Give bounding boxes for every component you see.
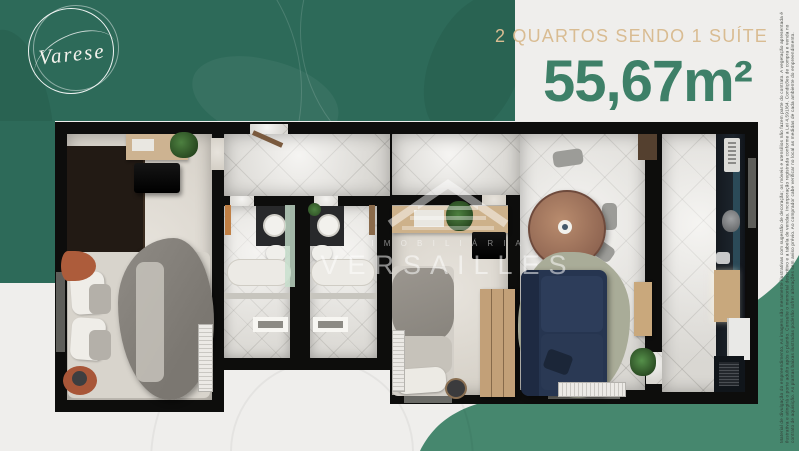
bath2-shower-divider xyxy=(310,293,377,299)
suite-blanket-fold xyxy=(136,262,164,382)
suite-window xyxy=(56,272,65,352)
bath2-towel xyxy=(369,205,375,235)
legal-disclaimer-vertical: Material de divulgação do empreendimento… xyxy=(779,8,795,443)
living-console xyxy=(634,282,652,336)
suite-wardrobe xyxy=(67,146,145,254)
living-shelf xyxy=(638,134,657,160)
varese-logo: Varese xyxy=(24,4,120,100)
desk-papers xyxy=(132,139,154,151)
bedroom2-window xyxy=(404,396,452,403)
suite-cushion xyxy=(89,284,111,314)
hall-floor xyxy=(224,134,390,196)
kitchen-oven-controls xyxy=(728,142,736,164)
kitchen-appliance-grill xyxy=(719,362,739,386)
header-area: 55,67m² xyxy=(432,48,752,115)
living-plant xyxy=(630,348,656,376)
dining-corridor-floor xyxy=(392,134,520,195)
kitchen-sink xyxy=(722,210,740,232)
bath2-sink xyxy=(317,214,340,237)
suite-bath-shower-divider xyxy=(224,293,290,299)
bath2-tub xyxy=(311,259,375,286)
bath2-drain-slot xyxy=(318,321,343,328)
suite-pouf-tray xyxy=(72,371,87,386)
bedroom2-radiator xyxy=(392,330,405,392)
sofa-cushion xyxy=(541,276,603,332)
suite-plant xyxy=(170,132,198,158)
kitchen-window xyxy=(748,158,756,228)
bedroom2-stool xyxy=(445,378,467,399)
sofa-backrest xyxy=(521,270,539,396)
kitchen-small-appliance xyxy=(716,252,730,264)
kitchen-fridge xyxy=(727,318,750,360)
suite-bath-door-opening xyxy=(230,196,254,206)
kitchen-wood-cabinet xyxy=(714,270,740,322)
header-subtitle: 2 QUARTOS SENDO 1 SUÍTE xyxy=(468,26,768,47)
suite-bath-drain-slot xyxy=(258,321,283,328)
bedroom2-tv xyxy=(472,232,506,259)
marketing-page: Varese 2 QUARTOS SENDO 1 SUÍTE 55,67m² xyxy=(0,0,799,451)
suite-bath-sink xyxy=(263,214,286,237)
suite-tv xyxy=(134,163,180,193)
suite-bath-tub xyxy=(227,259,291,286)
bedroom2-door-opening xyxy=(482,195,506,205)
bath2-plant xyxy=(308,203,321,216)
bedroom2-desk-items xyxy=(414,210,444,227)
bedroom2-wardrobe xyxy=(480,289,515,397)
suite-radiator xyxy=(198,324,213,392)
dining-table-dish xyxy=(562,224,568,230)
suite-bath-glass-panel xyxy=(285,205,295,287)
living-ac-unit xyxy=(558,382,626,397)
suite-cushion xyxy=(89,330,111,360)
suite-bath-towel xyxy=(225,205,231,235)
bedroom2-plant xyxy=(446,201,473,231)
suite-door-opening xyxy=(211,138,224,170)
